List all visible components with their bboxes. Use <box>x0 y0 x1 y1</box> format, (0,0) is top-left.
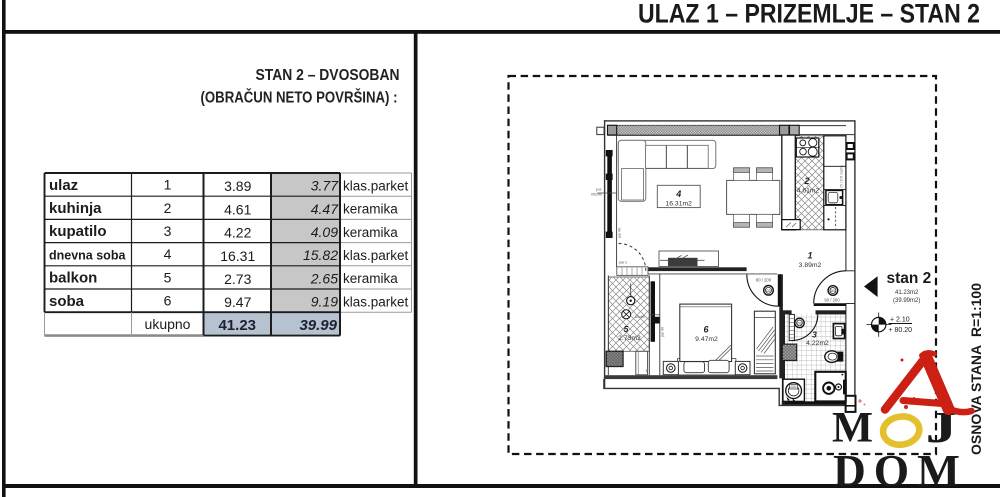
svg-text:2.73m2: 2.73m2 <box>618 335 641 342</box>
svg-text:3.89: 3.89 <box>224 178 251 194</box>
svg-text:OSNOVA STANA R=1:100: OSNOVA STANA R=1:100 <box>969 283 984 455</box>
svg-text:80 / 200: 80 / 200 <box>756 277 772 282</box>
svg-text:02: 02 <box>766 288 771 293</box>
svg-text:2: 2 <box>164 200 172 216</box>
svg-text:poz: poz <box>596 188 602 192</box>
svg-text:9.47: 9.47 <box>224 294 251 310</box>
svg-text:60x60: 60x60 <box>635 315 645 319</box>
svg-text:5: 5 <box>624 324 629 334</box>
svg-text:16.31: 16.31 <box>220 248 255 264</box>
svg-text:+ 80.20: + 80.20 <box>889 327 913 334</box>
svg-text:2: 2 <box>803 176 809 186</box>
svg-text:16.31m2: 16.31m2 <box>665 200 692 207</box>
svg-text:ulaz: ulaz <box>49 177 78 194</box>
svg-text:4.22m2: 4.22m2 <box>806 340 829 347</box>
svg-text:3: 3 <box>164 223 172 239</box>
svg-text:3: 3 <box>812 330 817 340</box>
svg-text:soba: soba <box>49 293 85 310</box>
svg-text:par s: par s <box>619 261 627 265</box>
svg-text:keramika: keramika <box>343 271 398 286</box>
svg-text:klas.parket: klas.parket <box>343 248 409 263</box>
svg-text:2.65: 2.65 <box>310 270 338 286</box>
svg-text:4.47: 4.47 <box>311 201 339 217</box>
svg-text:5: 5 <box>164 269 172 285</box>
svg-text:keramika: keramika <box>343 225 398 240</box>
svg-text:kupatilo: kupatilo <box>49 223 107 240</box>
svg-text:9.47m2: 9.47m2 <box>695 336 718 343</box>
svg-text:05 / 205 nad/m: 05 / 205 nad/m <box>840 165 844 188</box>
svg-text:39.99: 39.99 <box>299 317 337 334</box>
svg-text:(OBRAČUN NETO POVRŠINA) :: (OBRAČUN NETO POVRŠINA) : <box>201 88 398 107</box>
svg-text:4: 4 <box>675 189 681 199</box>
svg-text:3.89m2: 3.89m2 <box>799 262 822 269</box>
svg-text:kuhinja: kuhinja <box>49 200 102 217</box>
svg-text:05/240: 05/240 <box>591 193 602 197</box>
svg-text:balkon: balkon <box>49 270 97 287</box>
svg-text:4: 4 <box>164 246 172 262</box>
svg-text:2.73: 2.73 <box>224 271 251 287</box>
svg-text:klas.parket: klas.parket <box>343 294 409 309</box>
svg-text:par 90: par 90 <box>618 228 622 238</box>
svg-text:klas.parket: klas.parket <box>343 178 409 193</box>
svg-text:par 90: par 90 <box>661 327 665 337</box>
svg-text:1: 1 <box>807 250 812 260</box>
svg-text:+ 2.10: + 2.10 <box>890 317 910 324</box>
svg-text:ukupno: ukupno <box>145 316 191 332</box>
svg-text:41.23m2: 41.23m2 <box>895 290 919 296</box>
svg-text:15.82: 15.82 <box>303 247 338 263</box>
svg-text:(39.99m2): (39.99m2) <box>893 298 920 304</box>
svg-text:stan 2: stan 2 <box>887 270 932 287</box>
svg-text:9.19: 9.19 <box>311 294 338 310</box>
svg-text:dnevna soba: dnevna soba <box>49 248 126 262</box>
svg-text:4.09: 4.09 <box>311 224 338 240</box>
svg-text:DOM: DOM <box>833 445 960 496</box>
svg-text:4.61: 4.61 <box>224 201 251 217</box>
svg-text:1: 1 <box>164 177 172 193</box>
svg-text:6: 6 <box>164 293 172 309</box>
svg-text:03: 03 <box>797 321 802 326</box>
svg-text:keramika: keramika <box>343 202 398 217</box>
svg-text:41.23: 41.23 <box>218 317 256 334</box>
svg-text:3.77: 3.77 <box>311 178 339 194</box>
svg-text:STAN 2 – DVOSOBAN: STAN 2 – DVOSOBAN <box>256 67 400 84</box>
svg-text:4.22: 4.22 <box>224 225 251 241</box>
svg-text:01: 01 <box>831 288 836 293</box>
svg-text:ULAZ 1 – PRIZEMLJE – STAN 2: ULAZ 1 – PRIZEMLJE – STAN 2 <box>638 0 980 29</box>
svg-text:4.61m2: 4.61m2 <box>797 188 820 195</box>
svg-text:90 / 200: 90 / 200 <box>824 298 840 303</box>
